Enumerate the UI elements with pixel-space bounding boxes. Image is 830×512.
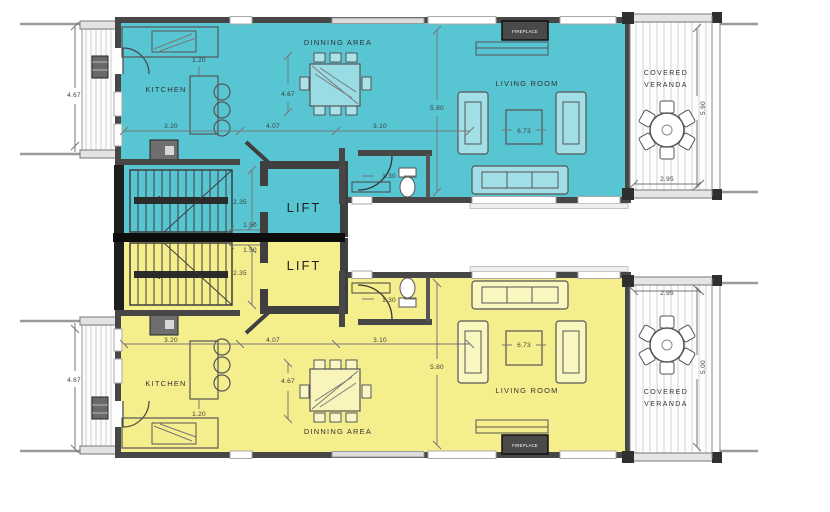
upper-living-label: LIVING ROOM: [495, 79, 558, 88]
upper-dim-wc: 1.30: [382, 173, 396, 180]
lower-unit: [20, 238, 758, 463]
upper-dim-balcony-height: 4.67: [67, 92, 81, 99]
lower-dim-dining-width: 4.07: [266, 337, 280, 344]
upper-unit: [20, 12, 758, 237]
upper-veranda-label-2: VERANDA: [644, 82, 688, 89]
lower-fireplace-label: FIREPLACE: [512, 443, 538, 448]
upper-dim-landing: 1.50: [243, 222, 257, 229]
upper-dim-veranda-width: 2.95: [660, 176, 674, 183]
upper-dim-living-height: 5.80: [430, 105, 444, 112]
upper-dim-dining-width: 4.07: [266, 123, 280, 130]
lower-unit-geometry: [20, 238, 758, 463]
lower-dim-landing: 1.50: [243, 247, 257, 254]
floor-plan-canvas: KITCHEN DINNING AREA LIVING ROOM LIFT FI…: [0, 0, 830, 512]
lower-dining-label: DINNING AREA: [304, 427, 372, 436]
lower-dim-hall-width: 3.10: [373, 337, 387, 344]
upper-lift-label: LIFT: [287, 200, 322, 215]
lower-veranda-label-1: COVERED: [644, 389, 688, 396]
upper-dim-hall-width: 3.10: [373, 123, 387, 130]
lower-dim-balcony-height: 4.67: [67, 377, 81, 384]
lower-veranda-label-2: VERANDA: [644, 401, 688, 408]
floor-divider: [113, 233, 345, 242]
lower-dim-dining-height: 4.67: [281, 378, 295, 385]
duplex-floor-plan: KITCHEN DINNING AREA LIVING ROOM LIFT FI…: [0, 0, 830, 512]
upper-kitchen-label: KITCHEN: [145, 85, 186, 94]
lower-kitchen-label: KITCHEN: [145, 379, 186, 388]
upper-unit-geometry: [20, 12, 758, 237]
upper-dim-kitchen-opening: 1.20: [192, 57, 206, 64]
upper-dim-kitchen-width: 3.20: [164, 123, 178, 130]
upper-veranda-label-1: COVERED: [644, 70, 688, 77]
upper-dim-stair: 2.35: [233, 199, 247, 206]
upper-dim-veranda-height: 5.90: [700, 101, 707, 115]
lower-living-label: LIVING ROOM: [495, 386, 558, 395]
lower-lift-label: LIFT: [287, 258, 322, 273]
upper-dim-dining-height: 4.67: [281, 91, 295, 98]
lower-dim-veranda-width: 2.95: [660, 290, 674, 297]
lower-dim-kitchen-width: 3.20: [164, 337, 178, 344]
lower-dim-veranda-height: 5.00: [700, 360, 707, 374]
lower-dim-kitchen-opening: 1.20: [192, 411, 206, 418]
lower-dim-stair: 2.35: [233, 270, 247, 277]
upper-dining-label: DINNING AREA: [304, 38, 372, 47]
lower-dim-living-height: 5.80: [430, 364, 444, 371]
lower-dim-wc: 1.30: [382, 297, 396, 304]
upper-dim-coffee-table: 6.73: [517, 128, 531, 135]
upper-fireplace-label: FIREPLACE: [512, 29, 538, 34]
lower-dim-coffee-table: 6.73: [517, 342, 531, 349]
